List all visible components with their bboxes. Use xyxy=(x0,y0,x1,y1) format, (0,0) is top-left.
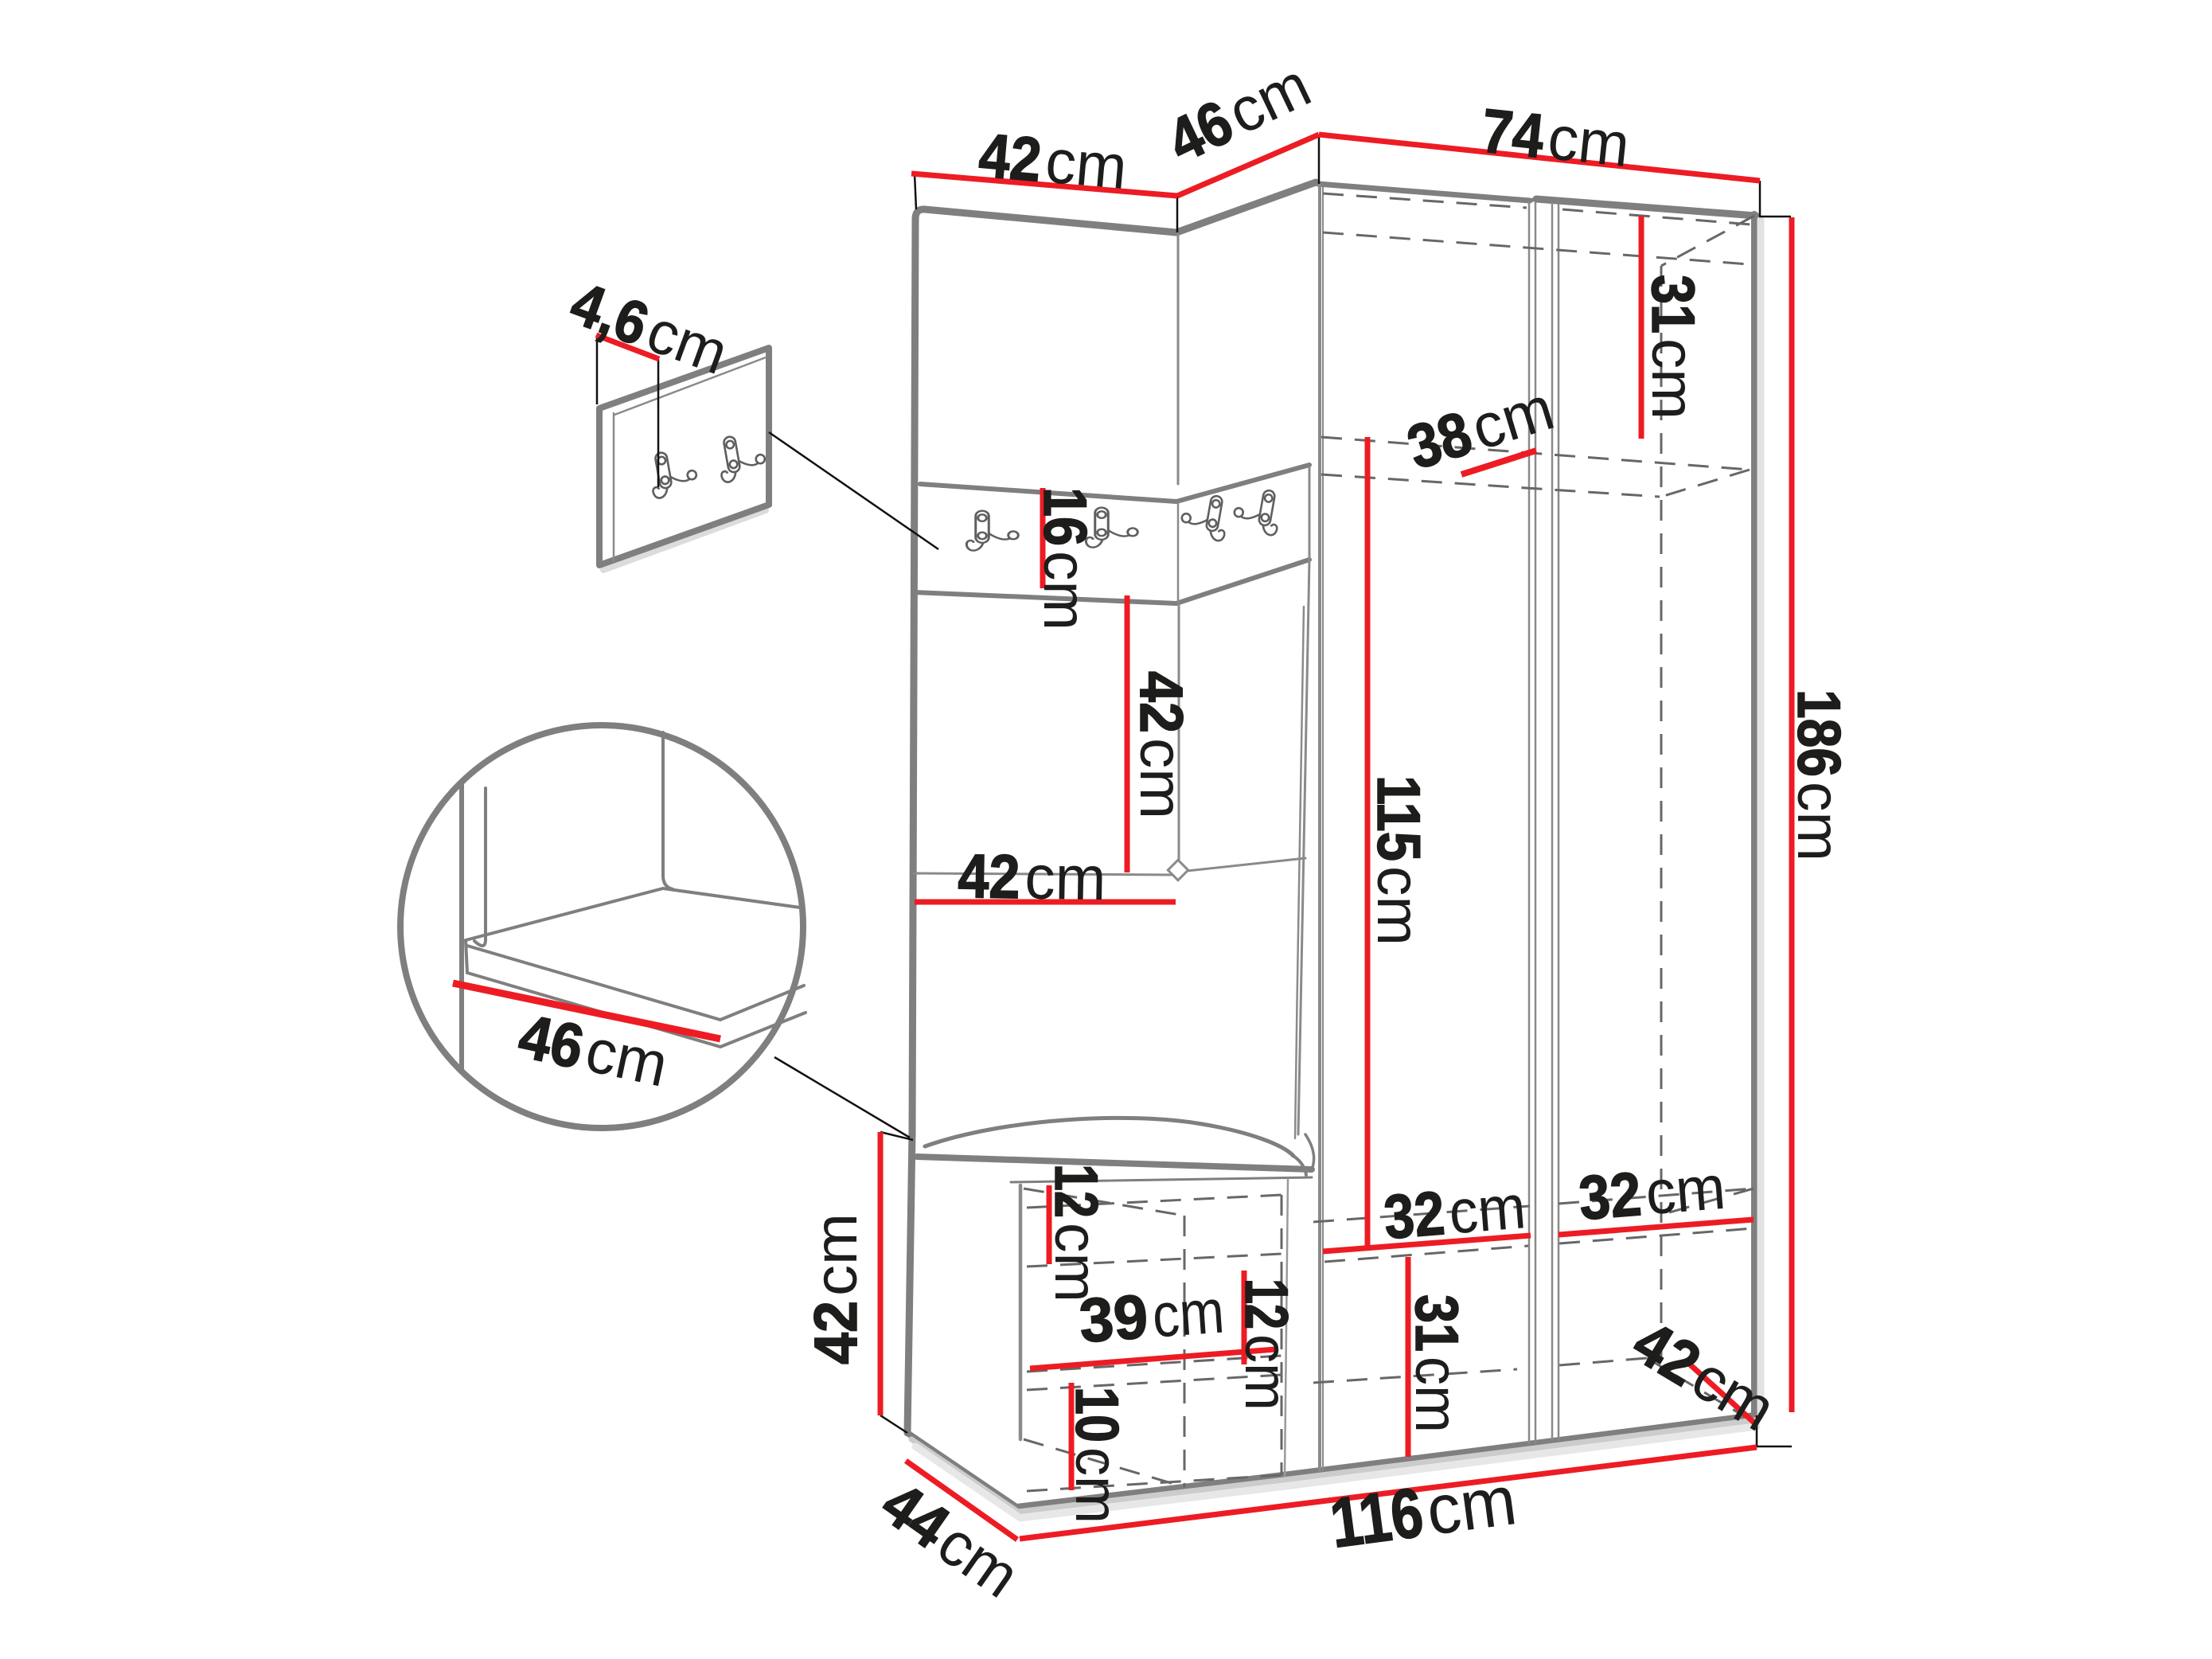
svg-text:cm: cm xyxy=(1545,102,1633,180)
svg-text:46: 46 xyxy=(513,1001,590,1083)
svg-text:116: 116 xyxy=(1326,1473,1428,1563)
svg-text:cm: cm xyxy=(1063,1447,1130,1524)
svg-text:12: 12 xyxy=(1232,1278,1300,1329)
svg-text:39: 39 xyxy=(1077,1281,1150,1356)
svg-text:cm: cm xyxy=(1643,1152,1728,1228)
svg-text:cm: cm xyxy=(1024,841,1107,913)
svg-text:cm: cm xyxy=(1402,1356,1470,1433)
svg-text:115: 115 xyxy=(1364,775,1432,861)
svg-text:cm: cm xyxy=(1639,338,1707,420)
svg-text:31: 31 xyxy=(1402,1294,1470,1352)
svg-text:cm: cm xyxy=(1232,1334,1300,1411)
svg-text:cm: cm xyxy=(1364,866,1432,946)
svg-text:42: 42 xyxy=(802,1301,870,1364)
svg-text:32: 32 xyxy=(1576,1158,1644,1233)
svg-text:cm: cm xyxy=(1446,1171,1528,1247)
svg-text:cm: cm xyxy=(1150,1275,1227,1350)
svg-text:4,6: 4,6 xyxy=(562,269,657,359)
svg-text:cm: cm xyxy=(1031,551,1098,630)
svg-text:cm: cm xyxy=(1043,126,1129,203)
svg-text:31: 31 xyxy=(1639,275,1707,334)
svg-text:cm: cm xyxy=(802,1213,870,1296)
svg-text:186: 186 xyxy=(1785,689,1852,777)
svg-text:42: 42 xyxy=(1127,671,1195,733)
svg-text:42: 42 xyxy=(958,841,1021,911)
svg-text:cm: cm xyxy=(1127,738,1195,819)
svg-text:74: 74 xyxy=(1478,95,1547,171)
svg-text:42: 42 xyxy=(977,119,1044,194)
svg-text:10: 10 xyxy=(1063,1387,1130,1442)
svg-text:cm: cm xyxy=(1785,782,1852,861)
svg-text:16: 16 xyxy=(1031,487,1098,546)
svg-text:cm: cm xyxy=(1464,373,1562,463)
svg-text:32: 32 xyxy=(1381,1177,1447,1252)
svg-text:12: 12 xyxy=(1042,1164,1110,1218)
svg-text:cm: cm xyxy=(1422,1460,1521,1550)
